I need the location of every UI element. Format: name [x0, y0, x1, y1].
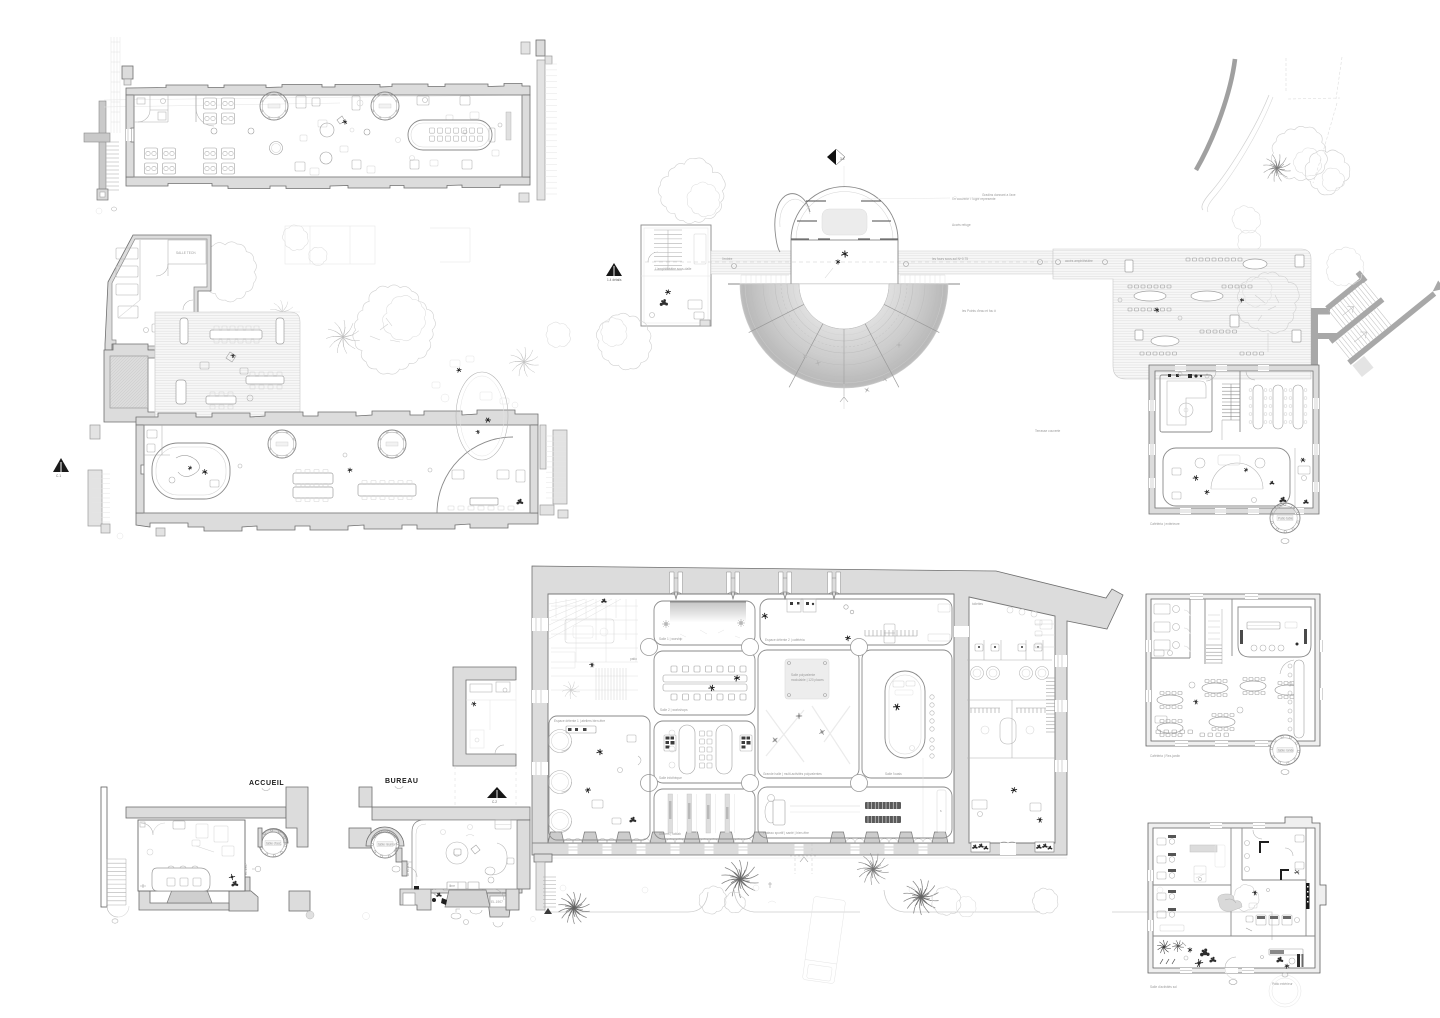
svg-text:Patio extérieur: Patio extérieur: [1272, 982, 1293, 986]
svg-text:Salle 1 | worship: Salle 1 | worship: [659, 637, 683, 641]
svg-text:Espace détente 2 | cafétéria: Espace détente 2 | cafétéria: [765, 638, 805, 642]
svg-text:Terrasse couverte: Terrasse couverte: [1035, 429, 1061, 433]
svg-text:libre: libre: [449, 884, 455, 888]
svg-text:table ronde: table ronde: [1278, 749, 1294, 753]
svg-text:toilettes: toilettes: [972, 602, 983, 606]
svg-text:EL.1907: EL.1907: [491, 900, 503, 904]
svg-text:Cafétéria | extérieure: Cafétéria | extérieure: [1150, 522, 1180, 526]
svg-text:accès amphithéâtre: accès amphithéâtre: [1065, 259, 1093, 263]
svg-text:BUREAU: BUREAU: [385, 778, 419, 785]
svg-text:Salle infothèque: Salle infothèque: [659, 776, 682, 780]
svg-text:l'm couverte / l'ogre represen: l'm couverte / l'ogre represente: [952, 197, 996, 201]
svg-text:les Points d'eau et fou #: les Points d'eau et fou #: [962, 309, 996, 313]
svg-text:modulable | 120 places: modulable | 120 places: [791, 678, 824, 682]
svg-text:SALLE TECH.: SALLE TECH.: [176, 251, 196, 255]
svg-text:Plateau sportif | santé | bien: Plateau sportif | santé | bien-être: [763, 831, 809, 835]
svg-text:table réunion: table réunion: [378, 843, 397, 847]
svg-text:3.8: 3.8: [840, 157, 845, 161]
svg-text:Grande halle | multi-activités: Grande halle | multi-activités polyvalen…: [763, 772, 822, 776]
svg-text:Cafétéria | Rez-jardin: Cafétéria | Rez-jardin: [1150, 754, 1180, 758]
svg-text:Ateliers | fablab: Ateliers | fablab: [659, 832, 681, 836]
svg-text:Espace détente 1 | ateliers bi: Espace détente 1 | ateliers bien-être: [554, 719, 605, 723]
svg-text:l'entrée: l'entrée: [722, 257, 733, 261]
svg-text:Salle 2 | workshops: Salle 2 | workshops: [660, 708, 688, 712]
svg-text:Salle d'activités sol: Salle d'activités sol: [1150, 985, 1177, 989]
svg-text:ATELIER: ATELIER: [406, 862, 410, 876]
svg-text:Patio table: Patio table: [1278, 517, 1293, 521]
svg-text:Accès refuge: Accès refuge: [952, 223, 971, 227]
svg-text:C.2: C.2: [492, 800, 497, 804]
svg-text:Salle l'oasis: Salle l'oasis: [885, 772, 902, 776]
svg-text:ACCUEIL: ACCUEIL: [249, 780, 284, 787]
svg-text:patio: patio: [630, 657, 637, 661]
svg-text:Gradins donnant a l'axe: Gradins donnant a l'axe: [982, 193, 1016, 197]
svg-text:les fours sous-sol N+0.75: les fours sous-sol N+0.75: [932, 257, 968, 261]
svg-text:L'amphithéâtre sous-dalle: L'amphithéâtre sous-dalle: [655, 267, 692, 271]
svg-text:Salle polyvalente: Salle polyvalente: [791, 673, 815, 677]
svg-text:1.4 détails: 1.4 détails: [607, 278, 622, 282]
svg-text:table d'acc.: table d'acc.: [266, 842, 282, 846]
svg-text:C.1: C.1: [56, 474, 61, 478]
